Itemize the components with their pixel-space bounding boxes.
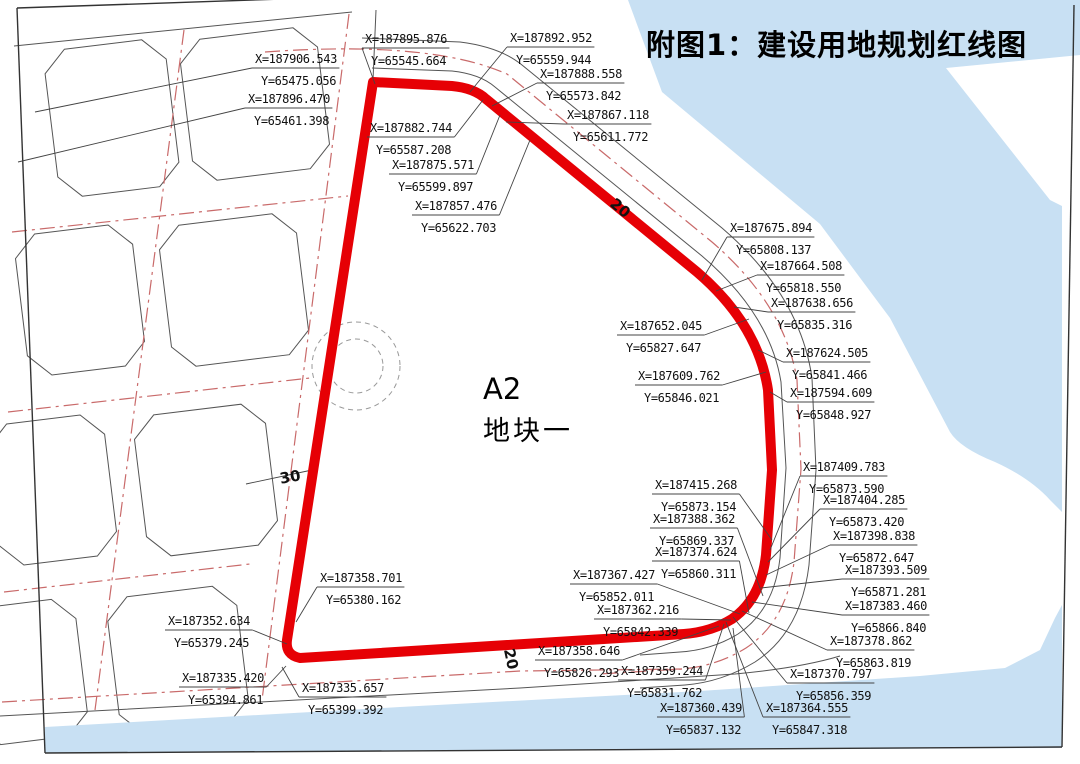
road-width-label: 30 bbox=[278, 466, 302, 487]
y-coordinate-text: Y=65827.647 bbox=[626, 341, 701, 355]
leader-line bbox=[499, 140, 530, 215]
figure-title: 附图1：建设用地规划红线图 bbox=[646, 22, 1076, 64]
x-coordinate-text: X=187675.894 bbox=[730, 221, 812, 235]
y-coordinate-text: Y=65622.703 bbox=[421, 221, 496, 235]
y-coordinate-text: Y=65475.056 bbox=[261, 74, 336, 88]
parcel-name: 地块一 bbox=[483, 409, 573, 448]
coordinate-label: X=187359.244Y=65831.762 bbox=[618, 664, 705, 700]
coordinate-label: X=187383.460Y=65866.840 bbox=[842, 599, 929, 635]
leader-line bbox=[252, 630, 287, 644]
coordinate-label: X=187335.420Y=65394.861 bbox=[179, 671, 266, 707]
leader-line bbox=[722, 372, 766, 385]
y-coordinate-text: Y=65399.392 bbox=[308, 703, 383, 717]
leader-line bbox=[454, 100, 483, 137]
y-coordinate-text: Y=65831.762 bbox=[627, 686, 702, 700]
x-coordinate-text: X=187404.285 bbox=[823, 493, 905, 507]
x-coordinate-text: X=187409.783 bbox=[803, 460, 885, 474]
y-coordinate-text: Y=65587.208 bbox=[376, 143, 451, 157]
x-coordinate-text: X=187624.505 bbox=[786, 346, 868, 360]
y-coordinate-text: Y=65611.772 bbox=[573, 130, 648, 144]
coordinate-label: X=187882.744Y=65587.208 bbox=[367, 121, 454, 157]
leader-line bbox=[35, 68, 252, 112]
water-band-top-right bbox=[628, 0, 1080, 512]
x-coordinate-text: X=187362.216 bbox=[597, 603, 679, 617]
x-coordinate-text: X=187638.656 bbox=[771, 296, 853, 310]
x-coordinate-text: X=187335.657 bbox=[302, 681, 384, 695]
leader-line bbox=[766, 545, 830, 575]
coordinate-label: X=187374.624Y=65860.311 bbox=[652, 545, 739, 581]
leader-line bbox=[716, 275, 757, 291]
y-coordinate-text: Y=65841.466 bbox=[792, 368, 867, 382]
y-coordinate-text: Y=65873.420 bbox=[829, 515, 904, 529]
city-block bbox=[160, 214, 309, 366]
x-coordinate-text: X=187388.362 bbox=[653, 512, 735, 526]
street-grid bbox=[0, 28, 329, 745]
leader-line bbox=[282, 667, 299, 697]
coordinate-label: X=187362.216Y=65842.339 bbox=[594, 603, 681, 639]
y-coordinate-text: Y=65826.293 bbox=[544, 666, 619, 680]
x-coordinate-text: X=187398.838 bbox=[833, 529, 915, 543]
coordinate-label: X=187638.656Y=65835.316 bbox=[768, 296, 855, 332]
x-coordinate-text: X=187358.701 bbox=[320, 571, 402, 585]
coordinate-label: X=187358.646Y=65826.293 bbox=[535, 644, 622, 680]
coordinate-label: X=187857.476Y=65622.703 bbox=[412, 199, 499, 235]
y-coordinate-text: Y=65837.132 bbox=[666, 723, 741, 737]
leader-line bbox=[476, 115, 500, 174]
y-coordinate-text: Y=65379.245 bbox=[174, 636, 249, 650]
x-coordinate-text: X=187857.476 bbox=[415, 199, 497, 213]
x-coordinate-text: X=187652.045 bbox=[620, 319, 702, 333]
x-coordinate-text: X=187892.952 bbox=[510, 31, 592, 45]
x-coordinate-text: X=187888.558 bbox=[540, 67, 622, 81]
x-coordinate-text: X=187374.624 bbox=[655, 545, 737, 559]
x-coordinate-text: X=187906.543 bbox=[255, 52, 337, 66]
coordinate-label: X=187358.701Y=65380.162 bbox=[317, 571, 404, 607]
coordinate-label: X=187409.783Y=65873.590 bbox=[800, 460, 887, 496]
x-coordinate-text: X=187358.646 bbox=[538, 644, 620, 658]
x-coordinate-text: X=187875.571 bbox=[392, 158, 474, 172]
coordinate-label: X=187675.894Y=65808.137 bbox=[727, 221, 814, 257]
y-coordinate-text: Y=65394.861 bbox=[188, 693, 263, 707]
y-coordinate-text: Y=65852.011 bbox=[579, 590, 654, 604]
coordinate-label: X=187378.862Y=65863.819 bbox=[827, 634, 914, 670]
coordinate-label: X=187867.118Y=65611.772 bbox=[564, 108, 651, 144]
coordinate-label: X=187388.362Y=65869.337 bbox=[650, 512, 737, 548]
y-coordinate-text: Y=65860.311 bbox=[661, 567, 736, 581]
x-coordinate-text: X=187383.460 bbox=[845, 599, 927, 613]
coordinate-label: X=187892.952Y=65559.944 bbox=[507, 31, 594, 67]
red-line-map-sheet: X=187906.543Y=65475.056X=187895.876Y=655… bbox=[0, 0, 1080, 764]
y-coordinate-text: Y=65559.944 bbox=[516, 53, 591, 67]
x-coordinate-text: X=187359.244 bbox=[621, 664, 703, 678]
coordinate-label: X=187594.609Y=65848.927 bbox=[787, 386, 874, 422]
coordinate-label: X=187906.543Y=65475.056 bbox=[252, 52, 339, 88]
coordinate-label: X=187393.509Y=65871.281 bbox=[842, 563, 929, 599]
x-coordinate-text: X=187415.268 bbox=[655, 478, 737, 492]
coordinate-label: X=187652.045Y=65827.647 bbox=[617, 319, 704, 355]
coordinate-label: X=187888.558Y=65573.842 bbox=[537, 67, 624, 103]
coordinate-label: X=187367.427Y=65852.011 bbox=[570, 568, 657, 604]
coordinate-label: X=187896.470Y=65461.398 bbox=[245, 92, 332, 128]
x-coordinate-text: X=187393.509 bbox=[845, 563, 927, 577]
coordinate-label: X=187404.285Y=65873.420 bbox=[820, 493, 907, 529]
leader-line bbox=[470, 47, 507, 92]
y-coordinate-text: Y=65871.281 bbox=[851, 585, 926, 599]
parcel-code: A2 bbox=[483, 372, 573, 406]
coordinate-label: X=187875.571Y=65599.897 bbox=[389, 158, 476, 194]
x-coordinate-text: X=187867.118 bbox=[567, 108, 649, 122]
y-coordinate-text: Y=65808.137 bbox=[736, 243, 811, 257]
y-coordinate-text: Y=65461.398 bbox=[254, 114, 329, 128]
y-coordinate-text: Y=65846.021 bbox=[644, 391, 719, 405]
coordinate-label: X=187398.838Y=65872.647 bbox=[830, 529, 917, 565]
x-coordinate-text: X=187352.634 bbox=[168, 614, 250, 628]
y-coordinate-text: Y=65835.316 bbox=[777, 318, 852, 332]
x-coordinate-text: X=187609.762 bbox=[638, 369, 720, 383]
x-coordinate-text: X=187364.555 bbox=[766, 701, 848, 715]
leader-line bbox=[752, 602, 842, 615]
x-coordinate-text: X=187594.609 bbox=[790, 386, 872, 400]
x-coordinate-text: X=187896.470 bbox=[248, 92, 330, 106]
x-coordinate-text: X=187895.876 bbox=[365, 32, 447, 46]
y-coordinate-text: Y=65380.162 bbox=[326, 593, 401, 607]
leader-line bbox=[761, 579, 842, 588]
y-coordinate-text: Y=65847.318 bbox=[772, 723, 847, 737]
x-coordinate-text: X=187335.420 bbox=[182, 671, 264, 685]
coordinate-label: X=187352.634Y=65379.245 bbox=[165, 614, 252, 650]
parcel-label: A2 地块一 bbox=[483, 372, 573, 448]
y-coordinate-text: Y=65545.664 bbox=[371, 54, 446, 68]
coordinate-label: X=187609.762Y=65846.021 bbox=[635, 369, 722, 405]
city-block bbox=[135, 404, 278, 556]
coordinate-label: X=187664.508Y=65818.550 bbox=[757, 259, 844, 295]
y-coordinate-text: Y=65818.550 bbox=[766, 281, 841, 295]
coordinate-label: X=187415.268Y=65873.154 bbox=[652, 478, 739, 514]
coordinate-label: X=187895.876Y=65545.664 bbox=[362, 32, 449, 68]
x-coordinate-text: X=187664.508 bbox=[760, 259, 842, 273]
y-coordinate-text: Y=65599.897 bbox=[398, 180, 473, 194]
city-block bbox=[0, 415, 117, 565]
coordinate-label: X=187624.505Y=65841.466 bbox=[783, 346, 870, 382]
y-coordinate-text: Y=65866.840 bbox=[851, 621, 926, 635]
city-block bbox=[108, 586, 248, 733]
leader-line bbox=[18, 108, 245, 162]
x-coordinate-text: X=187370.797 bbox=[790, 667, 872, 681]
x-coordinate-text: X=187882.744 bbox=[370, 121, 452, 135]
x-coordinate-text: X=187378.862 bbox=[830, 634, 912, 648]
city-block bbox=[45, 40, 179, 196]
y-coordinate-text: Y=65573.842 bbox=[546, 89, 621, 103]
x-coordinate-text: X=187360.439 bbox=[660, 701, 742, 715]
y-coordinate-text: Y=65842.339 bbox=[603, 625, 678, 639]
city-block bbox=[16, 225, 145, 375]
leader-line bbox=[737, 528, 763, 596]
road-width-label: 20 bbox=[500, 647, 522, 671]
y-coordinate-text: Y=65848.927 bbox=[796, 408, 871, 422]
x-coordinate-text: X=187367.427 bbox=[573, 568, 655, 582]
